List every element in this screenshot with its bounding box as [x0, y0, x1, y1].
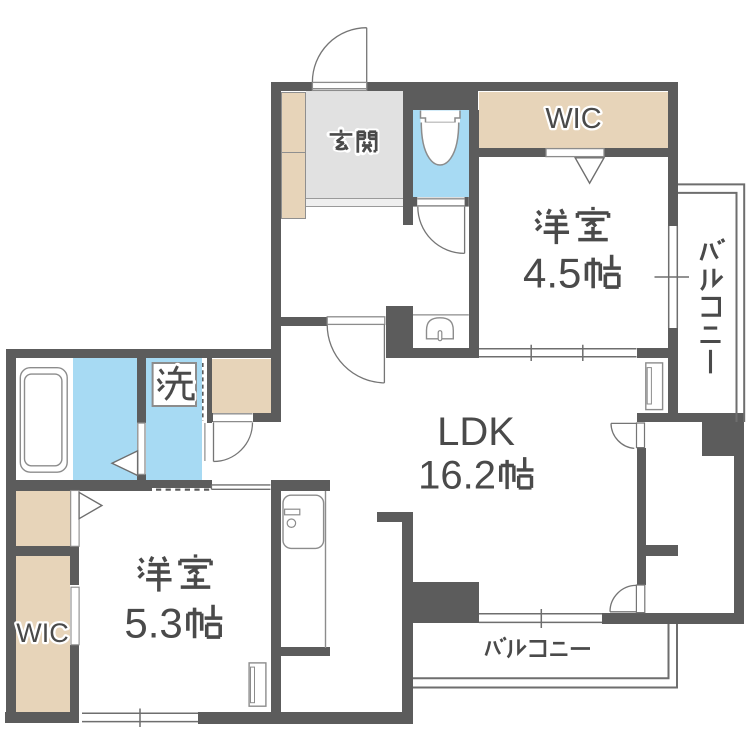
svg-text:5.3: 5.3 — [124, 600, 182, 647]
svg-text:WIC: WIC — [16, 618, 68, 648]
svg-text:16.2: 16.2 — [418, 453, 496, 497]
svg-text:WIC: WIC — [545, 103, 601, 135]
svg-text:4.5: 4.5 — [523, 250, 581, 297]
svg-text:LDK: LDK — [437, 410, 515, 454]
